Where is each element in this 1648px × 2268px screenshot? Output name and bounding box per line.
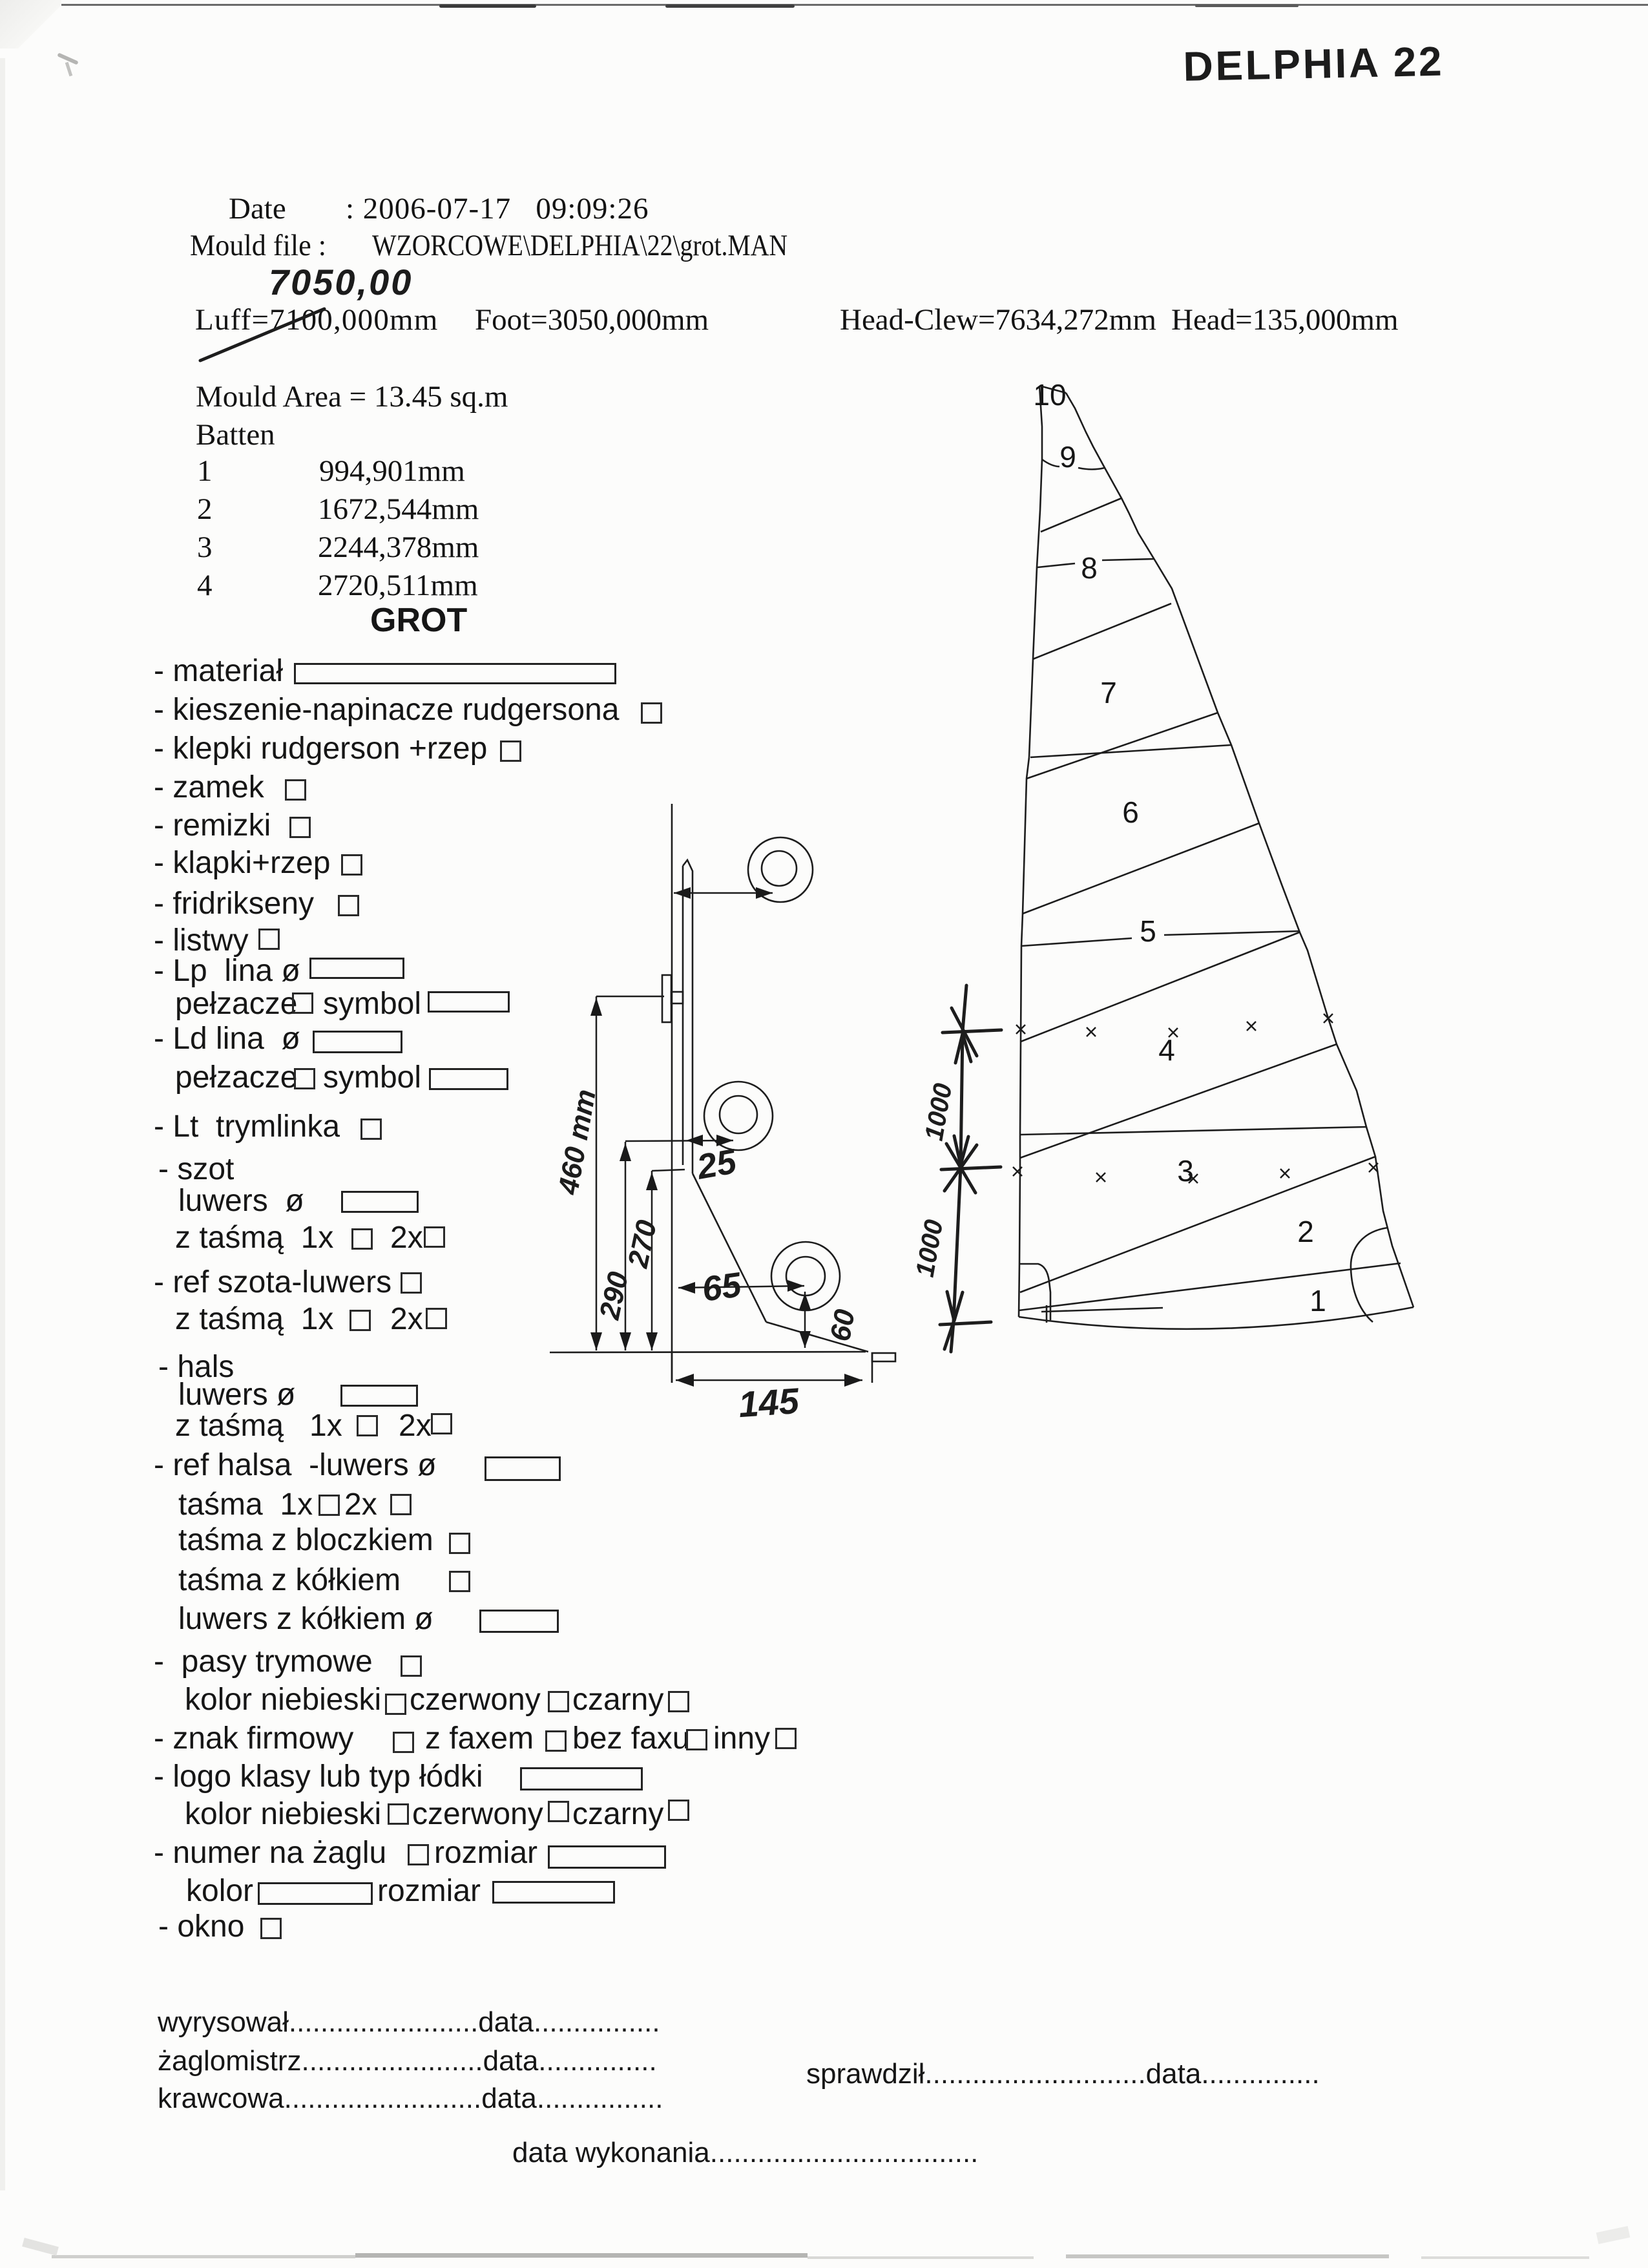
svg-text:DELPHIA 22: DELPHIA 22 [1183, 37, 1448, 90]
svg-text:60: 60 [824, 1307, 861, 1343]
svg-text:1: 1 [1309, 1284, 1326, 1318]
svg-text:2: 2 [1297, 1215, 1314, 1248]
svg-text:7050,00: 7050,00 [269, 262, 413, 302]
svg-text:7: 7 [1100, 676, 1117, 709]
svg-text:460 mm: 460 mm [552, 1087, 602, 1197]
svg-text:3: 3 [1177, 1154, 1194, 1188]
svg-text:1000: 1000 [911, 1217, 949, 1279]
svg-text:270: 270 [622, 1217, 663, 1271]
svg-text:10: 10 [1033, 378, 1066, 412]
svg-text:8: 8 [1081, 551, 1098, 585]
svg-text:6: 6 [1122, 795, 1139, 829]
svg-text:65: 65 [700, 1265, 744, 1309]
svg-text:290: 290 [594, 1269, 635, 1323]
svg-text:5: 5 [1140, 914, 1156, 948]
svg-text:25: 25 [694, 1142, 740, 1187]
svg-text:9: 9 [1059, 440, 1076, 474]
svg-text:1000: 1000 [920, 1081, 958, 1142]
svg-text:4: 4 [1158, 1033, 1175, 1067]
svg-text:145: 145 [737, 1380, 800, 1425]
